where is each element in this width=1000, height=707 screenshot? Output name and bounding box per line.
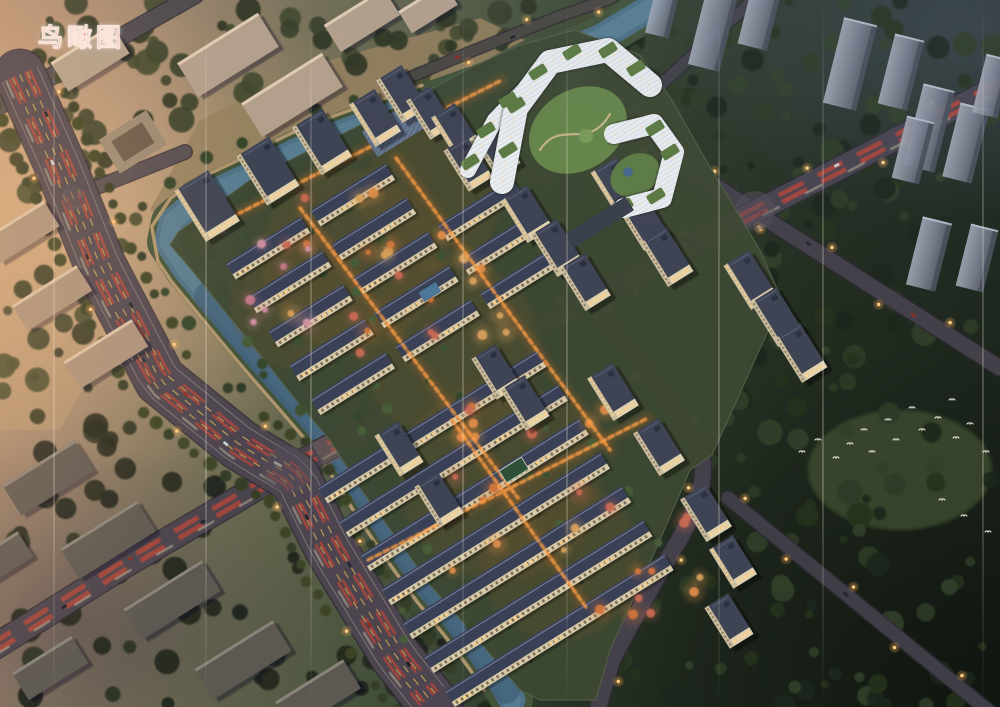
tree-cluster xyxy=(756,102,775,121)
autumn-tree xyxy=(449,567,456,574)
street-tree xyxy=(16,161,29,174)
tree-cluster xyxy=(3,306,12,315)
autumn-tree xyxy=(395,271,403,279)
street-light xyxy=(264,425,268,429)
tree-cluster xyxy=(829,668,840,679)
tree-cluster xyxy=(84,480,105,501)
street-light xyxy=(617,680,621,684)
street-tree xyxy=(382,570,391,579)
tree-cluster xyxy=(232,604,248,620)
tree-cluster xyxy=(747,161,755,169)
street-tree xyxy=(3,128,17,142)
street-light xyxy=(852,585,856,589)
autumn-tree xyxy=(364,328,370,334)
tree-cluster xyxy=(788,398,807,417)
street-tree xyxy=(280,527,291,538)
street-tree xyxy=(182,350,191,359)
tree-cluster xyxy=(806,600,817,611)
tree-cluster xyxy=(629,669,640,680)
street-tree xyxy=(270,511,280,521)
tree-cluster xyxy=(280,19,299,38)
autumn-tree xyxy=(648,568,655,575)
street-light xyxy=(89,308,93,312)
forest-clearing xyxy=(808,410,992,530)
tree-cluster xyxy=(958,74,972,88)
site-tree xyxy=(437,251,446,260)
tree-cluster xyxy=(25,368,50,393)
garden-mound xyxy=(579,129,593,143)
tree-cluster xyxy=(801,53,821,73)
street-light xyxy=(597,10,601,14)
tree-cluster xyxy=(873,507,886,520)
autumn-tree xyxy=(628,610,638,620)
tree-cluster xyxy=(916,603,934,621)
site-tree xyxy=(259,371,267,379)
tree-cluster xyxy=(169,107,195,133)
autumn-tree xyxy=(635,568,642,575)
tree-cluster xyxy=(981,34,1000,58)
street-tree xyxy=(189,448,199,458)
site-tree xyxy=(242,336,253,347)
riverbank-tree xyxy=(137,252,146,261)
bird xyxy=(953,437,959,438)
autumn-tree xyxy=(283,241,291,249)
tree-cluster xyxy=(926,473,945,492)
tree-cluster xyxy=(796,504,819,527)
tree-cluster xyxy=(978,642,987,651)
tree-cluster xyxy=(822,346,831,355)
tree-cluster xyxy=(876,461,889,474)
bird xyxy=(919,429,925,430)
bird xyxy=(833,457,839,458)
bird xyxy=(949,399,955,400)
autumn-tree xyxy=(262,307,268,313)
bird xyxy=(939,499,945,500)
street-tree xyxy=(285,429,297,441)
street-light xyxy=(112,220,116,224)
street-light xyxy=(679,558,683,562)
tree-cluster xyxy=(93,637,111,655)
tree-cluster xyxy=(154,649,179,674)
bird xyxy=(815,439,821,440)
autumn-tree xyxy=(437,231,446,240)
street-light xyxy=(960,674,964,678)
autumn-tree xyxy=(356,348,365,357)
tree-cluster xyxy=(839,373,856,390)
street-light xyxy=(467,61,471,65)
tree-cluster xyxy=(689,91,708,110)
street-tree xyxy=(108,199,117,208)
street-light xyxy=(687,486,691,490)
autumn-tree xyxy=(489,483,499,493)
autumn-tree xyxy=(303,318,311,326)
tree-cluster xyxy=(922,422,942,442)
tree-cluster xyxy=(847,353,860,366)
street-light xyxy=(175,429,179,433)
street-tree xyxy=(296,560,305,569)
street-tree xyxy=(104,183,114,193)
street-tree xyxy=(125,242,137,254)
tree-cluster xyxy=(862,495,871,504)
bird xyxy=(893,439,899,440)
site-tree xyxy=(654,539,662,547)
autumn-tree xyxy=(349,312,358,321)
tree-cluster xyxy=(123,640,136,653)
street-tree xyxy=(150,289,159,298)
tree-cluster xyxy=(64,0,88,15)
street-light xyxy=(743,497,747,501)
tree-cluster xyxy=(805,609,814,618)
tree-cluster xyxy=(852,523,865,536)
tree-cluster xyxy=(138,202,147,211)
tree-cluster xyxy=(488,0,512,24)
autumn-tree xyxy=(493,540,501,548)
street-tree xyxy=(72,117,85,130)
tree-cluster xyxy=(821,681,829,689)
tree-cluster xyxy=(663,682,689,707)
street-light xyxy=(345,629,349,633)
street-tree xyxy=(81,133,94,146)
autumn-tree xyxy=(381,251,389,259)
tree-cluster xyxy=(771,67,785,81)
tree-cluster xyxy=(941,579,957,595)
autumn-tree xyxy=(250,319,257,326)
bird xyxy=(983,451,989,452)
site-tree xyxy=(238,232,245,239)
tree-cluster xyxy=(879,39,889,49)
riverbank-tree xyxy=(161,288,170,297)
autumn-tree xyxy=(365,250,371,256)
street-tree xyxy=(178,437,190,449)
street-tree xyxy=(203,457,217,471)
street-tree xyxy=(424,635,435,646)
tree-cluster xyxy=(161,75,172,86)
tree-cluster xyxy=(309,17,327,35)
highrise-body xyxy=(823,17,877,111)
tree-cluster xyxy=(866,553,890,577)
tree-cluster xyxy=(868,674,887,693)
tree-cluster xyxy=(953,32,977,56)
tree-cluster xyxy=(859,114,881,136)
tree-cluster xyxy=(757,420,782,445)
bird xyxy=(799,451,805,452)
tree-cluster xyxy=(982,472,999,489)
tree-cluster xyxy=(837,480,862,505)
riverbank-tree xyxy=(236,383,246,393)
bird xyxy=(909,407,915,408)
tree-cluster xyxy=(772,575,791,594)
autumn-tree xyxy=(646,609,655,618)
street-tree xyxy=(235,477,249,491)
bird xyxy=(869,451,875,452)
tree-cluster xyxy=(54,348,64,358)
aerial-render: 鸟瞰图 xyxy=(0,0,1000,707)
tree-cluster xyxy=(878,402,900,424)
autumn-tree xyxy=(465,406,474,415)
street-light xyxy=(358,539,362,543)
autumn-tree xyxy=(635,594,643,602)
autumn-tree xyxy=(287,310,294,317)
site-tree xyxy=(422,544,433,555)
tree-cluster xyxy=(829,383,838,392)
tree-cluster xyxy=(835,312,853,330)
riverbank-tree xyxy=(237,137,248,148)
autumn-tree xyxy=(561,547,567,553)
tree-cluster xyxy=(715,663,727,675)
tree-cluster xyxy=(97,437,117,457)
tree-cluster xyxy=(134,49,160,75)
street-light xyxy=(877,303,881,307)
autumn-tree xyxy=(497,312,504,319)
street-tree xyxy=(378,693,388,703)
tree-cluster xyxy=(793,157,804,168)
tree-cluster xyxy=(719,166,727,174)
pond xyxy=(623,167,633,177)
street-tree xyxy=(223,383,234,394)
street-tree xyxy=(345,648,356,659)
tree-cluster xyxy=(762,171,771,180)
view-title-label: 鸟瞰图 xyxy=(38,26,125,51)
tree-cluster xyxy=(775,373,789,387)
tree-cluster xyxy=(684,39,693,48)
tree-cluster xyxy=(749,486,761,498)
street-tree xyxy=(301,437,311,447)
street-tree xyxy=(88,150,101,163)
street-tree xyxy=(220,470,232,482)
tree-cluster xyxy=(847,201,857,211)
street-light xyxy=(57,90,61,94)
tree-cluster xyxy=(965,557,975,567)
street-tree xyxy=(259,412,270,423)
autumn-tree xyxy=(305,246,311,252)
tree-cluster xyxy=(839,535,848,544)
autumn-tree xyxy=(503,329,510,336)
tree-cluster xyxy=(818,221,837,240)
tree-cluster xyxy=(784,0,793,6)
tree-cluster xyxy=(681,96,691,106)
street-light xyxy=(32,176,36,180)
street-tree xyxy=(118,380,129,391)
autumn-tree xyxy=(469,277,477,285)
tree-cluster xyxy=(445,40,457,52)
tree-cluster xyxy=(129,213,142,226)
street-light xyxy=(805,166,809,170)
autumn-tree xyxy=(571,524,580,533)
autumn-tree xyxy=(245,295,255,305)
tree-cluster xyxy=(900,211,909,220)
street-light xyxy=(881,161,885,165)
tree-cluster xyxy=(772,695,798,707)
tree-cluster xyxy=(814,305,836,327)
autumn-tree xyxy=(428,329,434,335)
tree-cluster xyxy=(706,96,727,117)
tree-cluster xyxy=(685,661,693,669)
street-tree xyxy=(273,420,283,430)
autumn-tree xyxy=(368,188,378,198)
bird xyxy=(847,443,853,444)
site-tree xyxy=(382,403,393,414)
tree-cluster xyxy=(836,0,851,10)
tree-cluster xyxy=(963,319,978,334)
street-light xyxy=(172,343,176,347)
tree-cluster xyxy=(777,82,793,98)
street-tree xyxy=(48,237,62,251)
street-light xyxy=(525,18,529,22)
autumn-tree xyxy=(355,194,364,203)
tree-cluster xyxy=(162,472,182,492)
tree-cluster xyxy=(919,698,934,707)
autumn-tree xyxy=(576,489,582,495)
tree-cluster xyxy=(217,21,227,31)
residential-tower xyxy=(704,592,759,654)
tree-cluster xyxy=(30,409,46,425)
autumn-tree xyxy=(689,587,699,597)
tree-cluster xyxy=(688,75,699,86)
bg-slab-southwest xyxy=(0,530,39,593)
riverbank-tree xyxy=(182,316,197,331)
street-tree xyxy=(301,576,312,587)
tree-cluster xyxy=(83,413,108,438)
street-tree xyxy=(54,254,67,267)
autumn-tree xyxy=(605,502,614,511)
tree-cluster xyxy=(888,315,904,331)
bird xyxy=(967,423,973,424)
tree-cluster xyxy=(788,681,801,694)
street-light xyxy=(830,246,834,250)
site-tree xyxy=(354,411,363,420)
tree-cluster xyxy=(462,31,474,43)
site-tree xyxy=(295,404,307,416)
tree-cluster xyxy=(716,130,726,140)
tree-cluster xyxy=(926,456,944,474)
site-tree xyxy=(357,426,367,436)
street-tree xyxy=(371,681,381,691)
tree-cluster xyxy=(839,422,855,438)
street-light xyxy=(275,505,279,509)
tree-cluster xyxy=(729,75,749,95)
tree-cluster xyxy=(787,428,808,449)
tree-cluster xyxy=(388,31,408,51)
street-tree xyxy=(313,590,323,600)
tree-cluster xyxy=(115,458,137,480)
street-tree xyxy=(287,543,297,553)
road-junction xyxy=(61,187,85,211)
street-light xyxy=(784,557,788,561)
tree-cluster xyxy=(763,242,779,258)
tree-cluster xyxy=(892,0,908,10)
site-tree xyxy=(257,358,268,369)
street-tree xyxy=(166,317,178,329)
tree-cluster xyxy=(854,672,864,682)
bird xyxy=(885,419,891,420)
tree-cluster xyxy=(105,686,121,702)
street-tree xyxy=(251,490,261,500)
scene-canvas xyxy=(0,0,1000,707)
street-tree xyxy=(94,167,105,178)
tree-cluster xyxy=(744,651,758,665)
street-tree xyxy=(140,272,152,284)
site-tree xyxy=(399,636,407,644)
tree-cluster xyxy=(927,36,950,59)
street-tree xyxy=(30,192,42,204)
site-tree xyxy=(441,344,448,351)
autumn-tree xyxy=(696,574,703,581)
tree-cluster xyxy=(884,474,906,496)
tree-cluster xyxy=(804,220,814,230)
tree-cluster xyxy=(736,453,746,463)
bird xyxy=(935,417,941,418)
tree-cluster xyxy=(123,421,137,435)
autumn-tree xyxy=(452,474,458,480)
street-tree xyxy=(84,319,96,331)
tree-cluster xyxy=(55,498,76,519)
road-junction xyxy=(263,446,311,494)
bird xyxy=(861,429,867,430)
street-tree xyxy=(320,605,331,616)
bg-highrise-northeast xyxy=(823,17,877,111)
riverbank-tree xyxy=(200,151,213,164)
tree-cluster xyxy=(162,697,175,707)
street-light xyxy=(893,646,897,650)
tree-cluster xyxy=(871,6,892,27)
bg-slab-southwest xyxy=(275,658,366,707)
tree-cluster xyxy=(520,0,537,15)
autumn-tree xyxy=(468,419,478,429)
tree-cluster xyxy=(162,93,177,108)
site-tree xyxy=(399,607,406,614)
autumn-tree xyxy=(477,330,487,340)
autumn-tree xyxy=(595,605,605,615)
site-tree xyxy=(350,258,359,267)
tree-cluster xyxy=(830,190,848,208)
tree-cluster xyxy=(770,603,785,618)
tree-cluster xyxy=(874,177,896,199)
tree-cluster xyxy=(809,647,819,657)
street-light xyxy=(948,321,952,325)
riverbank-tree xyxy=(164,177,176,189)
tree-cluster xyxy=(345,53,368,76)
tree-cluster xyxy=(148,36,159,47)
autumn-tree xyxy=(301,194,309,202)
street-tree xyxy=(138,407,149,418)
bg-slab-southwest xyxy=(194,619,296,704)
street-tree xyxy=(150,416,163,429)
tree-cluster xyxy=(741,49,764,72)
tree-cluster xyxy=(27,328,49,350)
bird xyxy=(961,515,967,516)
bird xyxy=(985,531,991,532)
street-tree xyxy=(68,101,79,112)
autumn-tree xyxy=(280,263,287,270)
autumn-tree xyxy=(257,239,266,248)
tree-cluster xyxy=(782,112,791,121)
tree-cluster xyxy=(813,123,826,136)
